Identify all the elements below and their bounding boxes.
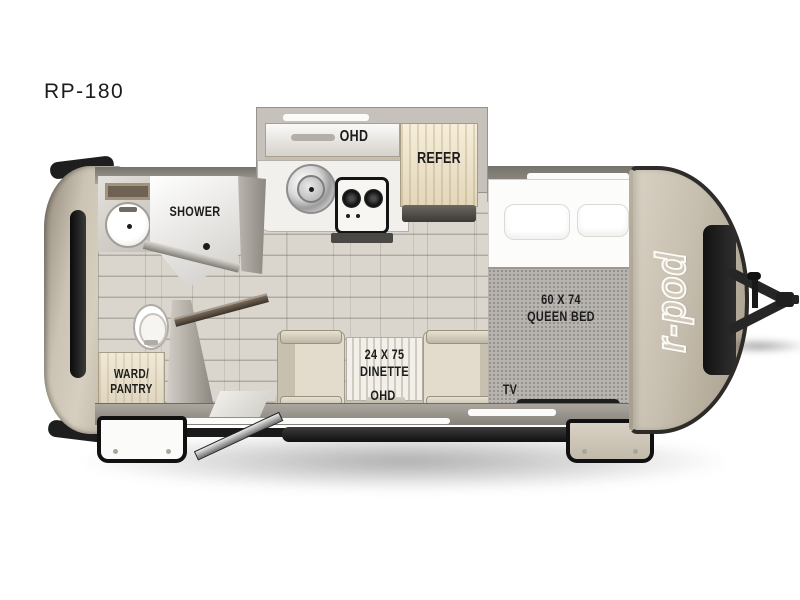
stove-burner-left [342,189,361,208]
shower-drain [203,243,210,250]
entry-door-flap [97,416,187,463]
stove [335,177,389,234]
bench-armrest [426,330,495,344]
kitchen-window-stripe [283,114,369,121]
hitch-jack-handle [747,272,761,280]
tv-label: TV [499,381,521,398]
rivet [113,449,118,454]
toilet-hinge [144,340,158,345]
rivet [166,449,171,454]
shower-label: SHOWER [164,203,226,220]
kitchen-bath-divider [238,176,266,274]
dinette-label: 24 X 75 DINETTE [351,346,417,379]
stove-burner-right [364,189,383,208]
hitch-coupler-tip [792,295,799,304]
refer-label: REFER [409,150,470,169]
awning-highlight-stripe [157,418,450,424]
hitch-jack-post [752,278,758,308]
ohd-handle [291,134,335,141]
model-label: RP-180 [44,80,124,104]
bathroom-sink-drain [127,224,132,229]
under-stove-trim [331,233,393,243]
pillow-left [504,204,570,240]
rivet [633,449,638,454]
bench-armrest [280,330,342,344]
ward-pantry-label: WARD/ PANTRY [105,366,157,397]
queen-bed-label: 60 X 74 QUEEN BED [504,291,618,324]
kitchen-ohd-label: OHD [335,128,372,147]
toilet [133,304,169,350]
refer-step [402,205,476,222]
rivet [582,449,587,454]
stove-knob-2 [356,214,360,218]
faucet [119,207,137,212]
hitch-shadow [706,338,800,354]
dinette-bench-right [423,331,498,409]
kitchen-sink [286,164,336,214]
rpod-logo: r-pod [647,226,707,379]
medicine-cabinet [105,183,151,200]
dinette-bench-left [277,331,345,409]
sink-drain [309,187,314,192]
pillow-right [577,204,629,237]
rv-floorplan-image: RP-180 OHD REFER SHOWER [0,0,800,600]
stove-knob-1 [346,214,350,218]
bottom-window-stripe [468,409,556,416]
dinette-ohd-label: OHD [365,387,401,404]
rear-window [70,210,86,378]
